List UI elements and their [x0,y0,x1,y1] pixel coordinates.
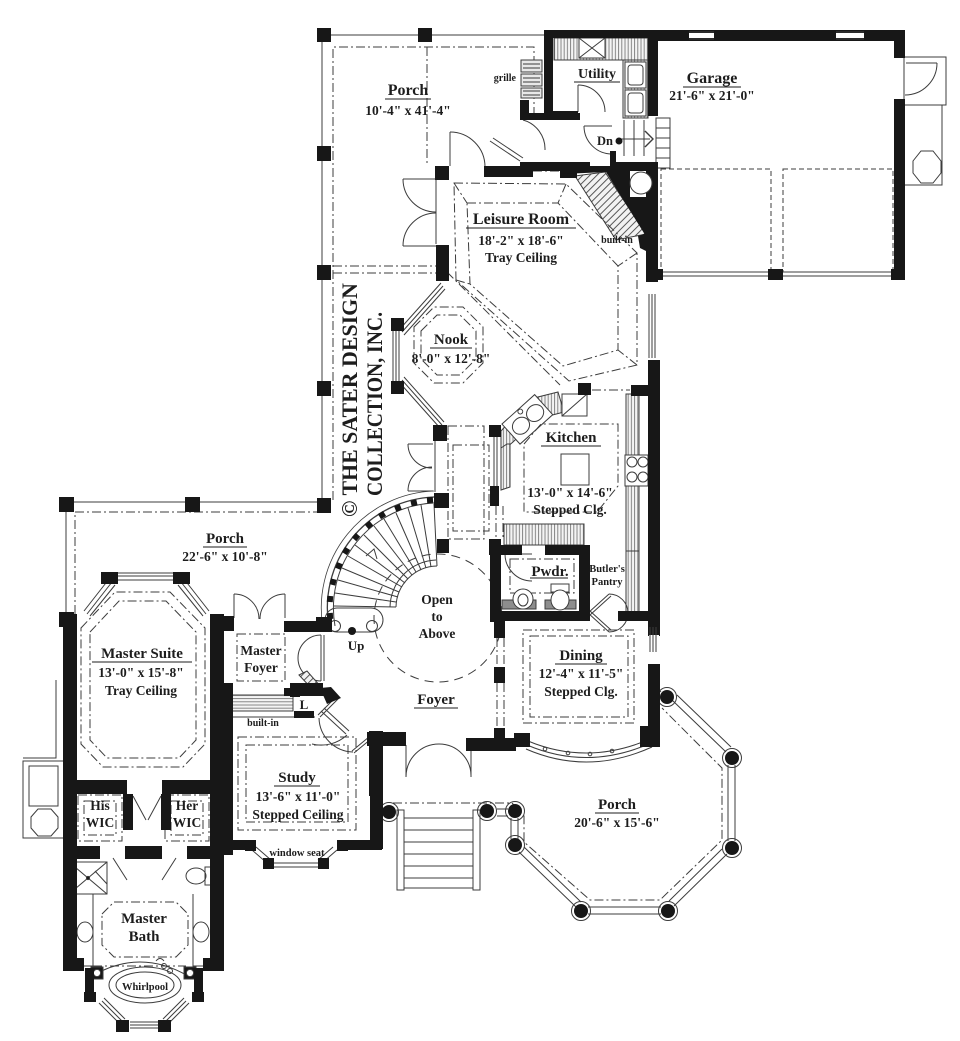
svg-text:10'-4" x 41'-4": 10'-4" x 41'-4" [365,103,450,118]
svg-text:8'-0" x 12'-8": 8'-0" x 12'-8" [412,351,491,366]
svg-text:Foyer: Foyer [244,660,278,675]
svg-text:Master: Master [240,643,281,658]
svg-text:Her: Her [176,798,199,813]
svg-text:Porch: Porch [388,82,429,99]
svg-text:Porch: Porch [598,797,637,813]
svg-text:Bath: Bath [129,929,161,945]
svg-text:Leisure Room: Leisure Room [473,211,570,228]
svg-text:window seat: window seat [269,848,325,859]
svg-text:Up: Up [348,638,365,653]
svg-text:Master: Master [121,911,167,927]
svg-text:to: to [431,609,442,624]
svg-text:Nook: Nook [434,332,469,348]
svg-text:WIC: WIC [86,815,115,830]
svg-text:Utility: Utility [578,67,616,82]
svg-text:Dn: Dn [597,134,613,148]
svg-text:18'-2" x 18'-6": 18'-2" x 18'-6" [478,233,563,248]
svg-text:13'-0" x 15'-8": 13'-0" x 15'-8" [98,665,183,680]
svg-text:Study: Study [278,770,316,786]
svg-text:COLLECTION, INC.: COLLECTION, INC. [362,312,387,496]
svg-text:Whirlpool: Whirlpool [122,982,168,993]
svg-text:Pantry: Pantry [592,577,624,588]
svg-text:L: L [300,697,309,712]
svg-text:Porch: Porch [206,531,245,547]
svg-text:Kitchen: Kitchen [546,430,597,446]
svg-text:Stepped Clg.: Stepped Clg. [533,502,607,517]
svg-text:grille: grille [494,73,517,84]
svg-text:20'-6" x 15'-6": 20'-6" x 15'-6" [574,815,659,830]
svg-text:His: His [90,798,110,813]
svg-text:Butler's: Butler's [589,564,625,575]
svg-text:WIC: WIC [173,815,202,830]
svg-text:21'-6" x 21'-0": 21'-6" x 21'-0" [669,88,754,103]
svg-text:© THE SATER DESIGN: © THE SATER DESIGN [337,283,362,517]
svg-text:Tray Ceiling: Tray Ceiling [485,250,557,265]
svg-text:13'-0" x 14'-6": 13'-0" x 14'-6" [527,485,612,500]
svg-text:Stepped Clg.: Stepped Clg. [544,684,618,699]
svg-text:Above: Above [419,626,456,641]
svg-text:13'-6" x 11'-0": 13'-6" x 11'-0" [256,789,341,804]
svg-text:Garage: Garage [687,70,738,87]
svg-text:12'-4" x 11'-5": 12'-4" x 11'-5" [539,666,624,681]
svg-text:22'-6" x 10'-8": 22'-6" x 10'-8" [182,549,267,564]
svg-text:built-in: built-in [601,235,633,246]
svg-text:Open: Open [421,592,453,607]
svg-text:Stepped Ceiling: Stepped Ceiling [252,807,343,822]
svg-text:built-in: built-in [247,718,279,729]
svg-text:Master Suite: Master Suite [101,646,183,662]
svg-text:Dining: Dining [559,648,603,664]
svg-text:Foyer: Foyer [417,692,455,708]
svg-text:Tray Ceiling: Tray Ceiling [105,683,177,698]
